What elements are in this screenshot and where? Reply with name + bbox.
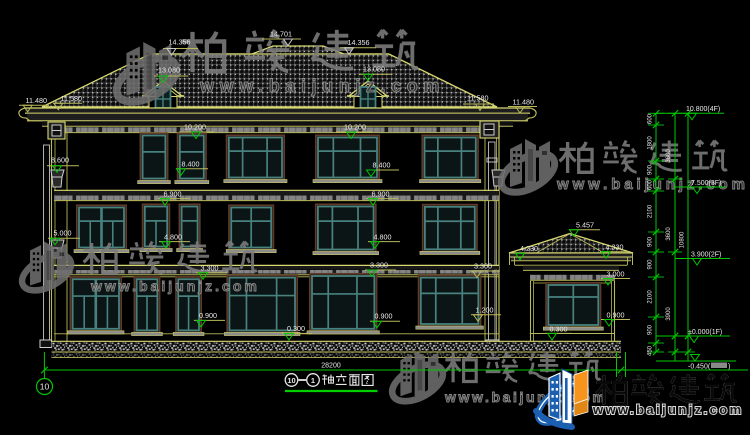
svg-text:10: 10: [40, 382, 50, 392]
svg-text:3600: 3600: [666, 227, 672, 241]
svg-text:1800: 1800: [648, 136, 654, 150]
svg-text:450: 450: [648, 345, 654, 356]
svg-text:3.300: 3.300: [201, 264, 219, 273]
svg-text:11.480: 11.480: [26, 96, 47, 105]
svg-text:2100: 2100: [648, 204, 654, 218]
svg-text:11.480: 11.480: [513, 98, 534, 107]
svg-text:6.900: 6.900: [372, 190, 390, 199]
svg-text:7.500(3F): 7.500(3F): [691, 180, 721, 187]
svg-text:13.080: 13.080: [363, 65, 385, 74]
svg-text:10800: 10800: [680, 231, 686, 248]
svg-text:5.000: 5.000: [54, 229, 72, 238]
svg-text:3.900(2F): 3.900(2F): [691, 251, 721, 258]
svg-text:900: 900: [648, 259, 654, 270]
svg-text:4.230: 4.230: [520, 244, 538, 253]
svg-text:4.330: 4.330: [606, 242, 624, 251]
svg-text:14.356: 14.356: [348, 38, 370, 47]
svg-text:8.400: 8.400: [182, 160, 200, 169]
svg-text:3900: 3900: [666, 307, 672, 321]
svg-text:900: 900: [648, 236, 654, 247]
svg-text:4.800: 4.800: [374, 233, 392, 242]
svg-text:6.900: 6.900: [164, 190, 182, 199]
svg-text:0.900: 0.900: [375, 312, 393, 321]
svg-text:2100: 2100: [648, 290, 654, 304]
svg-text:8.400: 8.400: [373, 161, 391, 170]
svg-text:www.baijunjz.com: www.baijunjz.com: [592, 402, 744, 417]
svg-text:14.701: 14.701: [270, 30, 292, 39]
svg-text:13.080: 13.080: [158, 66, 180, 75]
svg-text:600: 600: [648, 179, 654, 190]
svg-text:900: 900: [648, 164, 654, 175]
svg-text:0.900: 0.900: [199, 311, 217, 320]
svg-text:0.300: 0.300: [287, 324, 305, 333]
svg-text:10.200: 10.200: [344, 123, 366, 132]
svg-text:600: 600: [648, 113, 654, 124]
svg-text:28200: 28200: [321, 363, 341, 370]
svg-text:4.800: 4.800: [164, 233, 182, 242]
svg-text:www.baijunjz.com: www.baijunjz.com: [199, 76, 445, 96]
svg-text:3.300: 3.300: [370, 261, 388, 270]
svg-text:14.356: 14.356: [169, 38, 191, 47]
svg-text:8.600: 8.600: [51, 156, 69, 165]
svg-text:5.457: 5.457: [576, 220, 594, 229]
svg-text:10.200: 10.200: [184, 123, 206, 132]
svg-text:3.000: 3.000: [607, 269, 625, 278]
svg-text:1.200: 1.200: [476, 306, 494, 315]
svg-text:10: 10: [287, 376, 295, 385]
svg-text:3.300: 3.300: [474, 262, 492, 271]
svg-text:11.580: 11.580: [467, 94, 488, 103]
svg-text:www.baijunjz.com: www.baijunjz.com: [90, 278, 260, 294]
svg-text:0.300: 0.300: [550, 324, 568, 333]
svg-text:10.800(4F): 10.800(4F): [686, 106, 720, 113]
svg-text:0.900: 0.900: [607, 310, 625, 319]
svg-text:1: 1: [311, 376, 315, 385]
svg-text:900: 900: [648, 324, 654, 335]
svg-text:3600: 3600: [666, 149, 672, 163]
svg-text:11.580: 11.580: [61, 94, 82, 103]
svg-text:±0.000(1F): ±0.000(1F): [688, 329, 722, 336]
